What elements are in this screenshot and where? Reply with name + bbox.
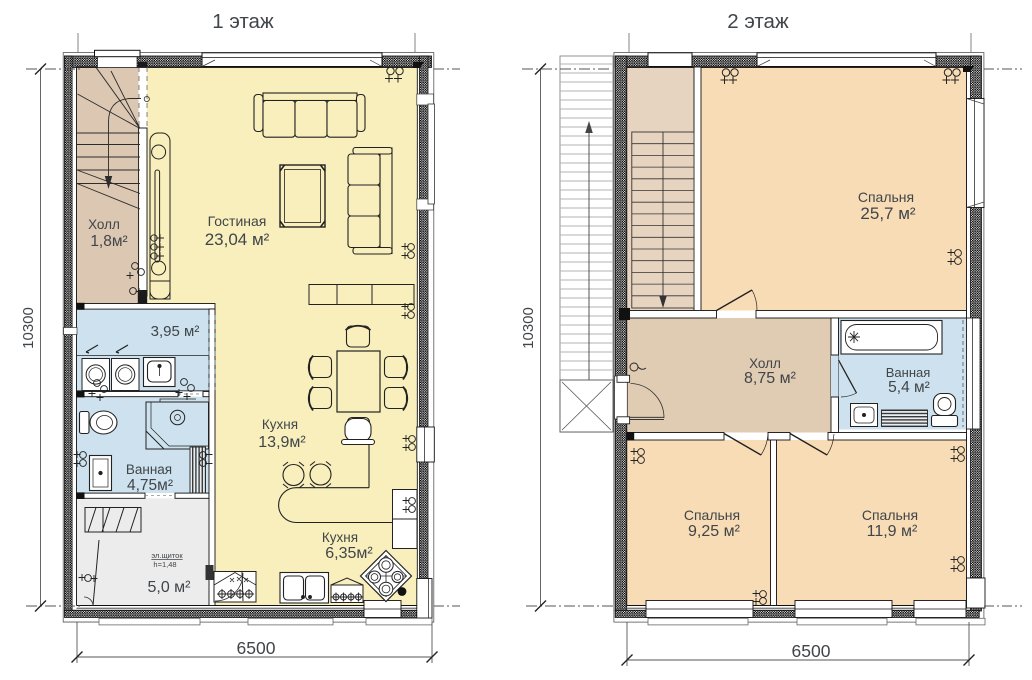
svg-text:Ванная: Ванная bbox=[886, 365, 931, 380]
svg-text:Спальня: Спальня bbox=[862, 507, 918, 523]
svg-text:11,9 м²: 11,9 м² bbox=[867, 523, 918, 540]
svg-text:Спальня: Спальня bbox=[858, 189, 914, 205]
svg-text:10300: 10300 bbox=[20, 307, 37, 349]
svg-text:13,9м²: 13,9м² bbox=[258, 434, 306, 451]
svg-text:Ванная: Ванная bbox=[126, 462, 172, 477]
svg-text:Кухня: Кухня bbox=[262, 417, 298, 432]
svg-text:4,75м²: 4,75м² bbox=[127, 477, 173, 494]
svg-text:2 этаж: 2 этаж bbox=[727, 10, 789, 33]
svg-text:1,8м²: 1,8м² bbox=[90, 233, 127, 250]
svg-text:5,4 м²: 5,4 м² bbox=[888, 379, 930, 396]
svg-text:6500: 6500 bbox=[237, 638, 276, 658]
svg-text:3,95 м²: 3,95 м² bbox=[151, 323, 200, 340]
svg-text:Холл: Холл bbox=[749, 356, 781, 371]
svg-text:6,35м²: 6,35м² bbox=[325, 545, 373, 562]
svg-text:25,7 м²: 25,7 м² bbox=[860, 204, 915, 223]
svg-text:1 этаж: 1 этаж bbox=[212, 10, 274, 33]
svg-text:h=1,48: h=1,48 bbox=[153, 560, 176, 569]
svg-text:5,0 м²: 5,0 м² bbox=[147, 579, 191, 596]
svg-text:8,75 м²: 8,75 м² bbox=[744, 370, 797, 387]
svg-text:9,25 м²: 9,25 м² bbox=[688, 523, 741, 540]
svg-text:Холл: Холл bbox=[88, 217, 120, 232]
svg-text:Гостиная: Гостиная bbox=[208, 213, 267, 229]
svg-text:23,04 м²: 23,04 м² bbox=[205, 230, 270, 249]
svg-text:10300: 10300 bbox=[520, 307, 537, 349]
svg-text:эл.щиток: эл.щиток bbox=[151, 551, 183, 560]
svg-text:Спальня: Спальня bbox=[684, 507, 740, 523]
svg-text:Кухня: Кухня bbox=[322, 530, 358, 545]
svg-text:6500: 6500 bbox=[792, 641, 831, 661]
